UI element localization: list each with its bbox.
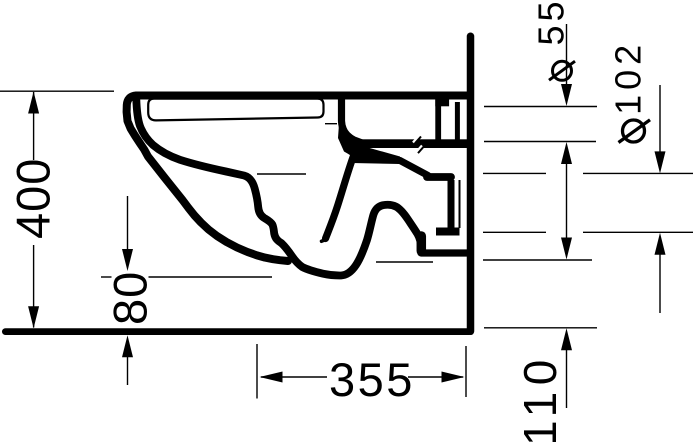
svg-text:55: 55 xyxy=(531,0,572,46)
svg-text:110: 110 xyxy=(514,353,566,442)
svg-text:102: 102 xyxy=(608,40,649,115)
svg-text:355: 355 xyxy=(329,353,415,406)
svg-text:80: 80 xyxy=(103,271,156,325)
svg-text:400: 400 xyxy=(7,158,60,239)
